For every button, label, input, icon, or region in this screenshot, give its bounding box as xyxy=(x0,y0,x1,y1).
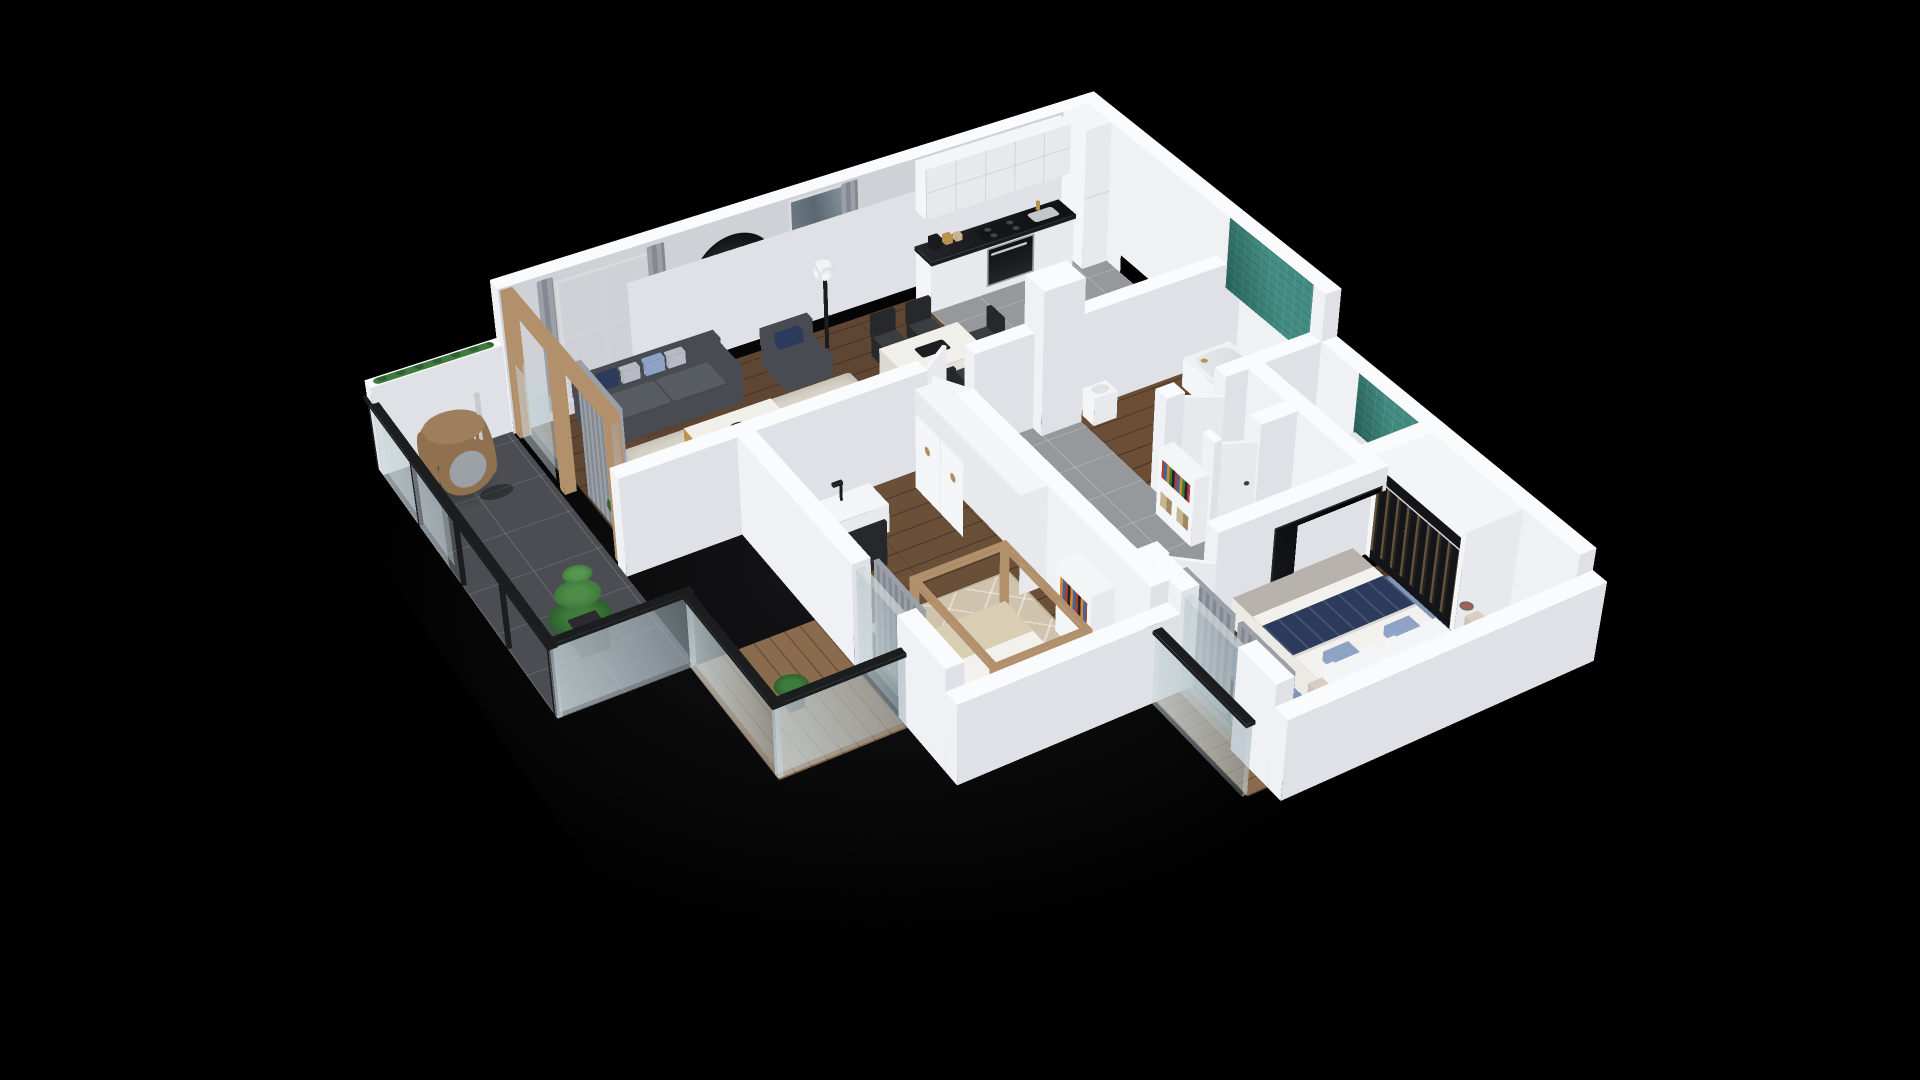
round-mirror xyxy=(692,222,776,322)
render-stage xyxy=(0,0,1920,1080)
dining-window xyxy=(788,183,848,328)
door-wc-handle xyxy=(1244,481,1250,486)
dining-curtain xyxy=(841,179,860,314)
wall-kids-south-west xyxy=(945,692,957,786)
egg-chair-cushion xyxy=(447,445,488,492)
duct-shaft-south xyxy=(1041,278,1085,437)
apartment-3d-scene xyxy=(506,194,1707,959)
kitchen-faucet-south xyxy=(1037,202,1040,211)
